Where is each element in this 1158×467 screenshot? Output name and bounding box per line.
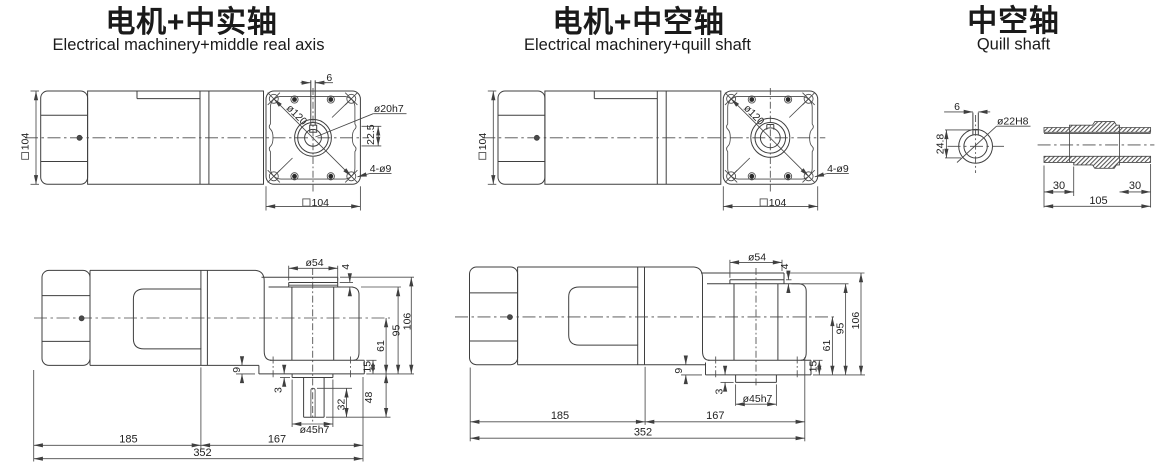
svg-text:95: 95 — [835, 323, 847, 335]
svg-text:61: 61 — [375, 340, 387, 352]
svg-text:105: 105 — [1089, 195, 1107, 207]
svg-text:ø20h7: ø20h7 — [374, 103, 404, 115]
svg-text:6: 6 — [954, 101, 960, 113]
svg-text:9: 9 — [231, 367, 243, 373]
svg-text:电机+中空轴: 电机+中空轴 — [552, 6, 724, 39]
svg-text:167: 167 — [268, 433, 286, 445]
svg-text:30: 30 — [1129, 180, 1141, 192]
svg-text:ø45h7: ø45h7 — [300, 424, 330, 436]
svg-text:48: 48 — [363, 392, 375, 404]
svg-text:Electrical machinery+quill sha: Electrical machinery+quill shaft — [524, 36, 751, 54]
svg-text:ø22H8: ø22H8 — [997, 116, 1029, 128]
svg-text:3: 3 — [713, 389, 725, 395]
svg-text:Quill shaft: Quill shaft — [977, 36, 1051, 54]
svg-text:32: 32 — [335, 399, 347, 411]
svg-text:106: 106 — [402, 313, 414, 331]
svg-text:6: 6 — [326, 72, 332, 84]
svg-text:4: 4 — [340, 264, 352, 270]
svg-text:106: 106 — [850, 312, 862, 330]
svg-text:ø54: ø54 — [305, 257, 323, 269]
svg-text:ø54: ø54 — [748, 251, 766, 263]
svg-text:ø45h7: ø45h7 — [743, 393, 773, 405]
svg-text:167: 167 — [706, 410, 724, 422]
svg-text:95: 95 — [390, 325, 402, 337]
svg-text:中空轴: 中空轴 — [967, 5, 1059, 38]
svg-text:24.8: 24.8 — [935, 134, 947, 155]
svg-text:3: 3 — [272, 387, 284, 393]
svg-text:9: 9 — [673, 368, 685, 374]
svg-text:30: 30 — [1053, 180, 1065, 192]
svg-text:352: 352 — [193, 447, 211, 459]
svg-text:15: 15 — [808, 361, 820, 373]
svg-text:电机+中实轴: 电机+中实轴 — [105, 5, 277, 39]
svg-text:61: 61 — [821, 340, 833, 352]
svg-text:Electrical machinery+middle re: Electrical machinery+middle real axis — [53, 36, 325, 54]
svg-text:352: 352 — [634, 427, 652, 439]
svg-text:4: 4 — [779, 263, 791, 269]
svg-text:185: 185 — [551, 410, 569, 422]
svg-text:185: 185 — [119, 433, 137, 445]
svg-text:22.5: 22.5 — [365, 124, 377, 145]
svg-text:15: 15 — [361, 361, 373, 373]
